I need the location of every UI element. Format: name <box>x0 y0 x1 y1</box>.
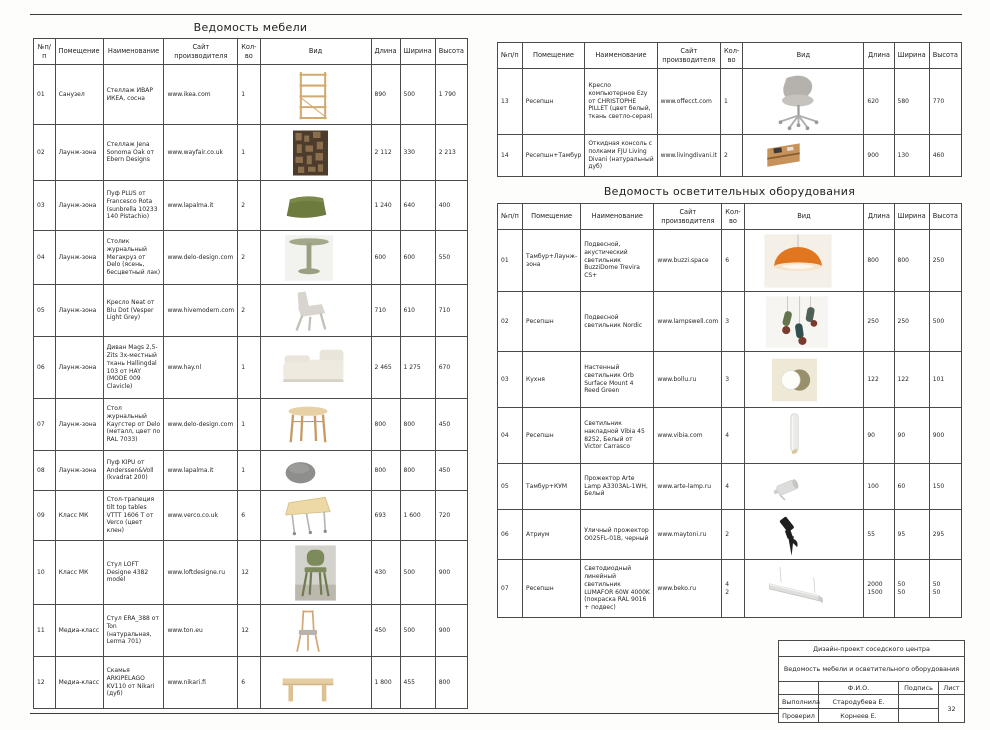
cell-name: Пуф KIPU от Anderssen&Voll (kvadrat 200) <box>103 451 164 491</box>
table-row: 07Лаунж-зонаСтол журнальный Каугстер от … <box>34 399 468 451</box>
cell-length: 2 465 <box>371 337 400 399</box>
cell-length: 2 112 <box>371 125 400 181</box>
view-cell <box>260 181 371 231</box>
col-header-no: №п/п <box>498 204 523 230</box>
cell-name: Настенный светильник Orb Surface Mount 4… <box>581 352 654 408</box>
cell-room: Ресепшн <box>522 69 585 135</box>
furniture-section: Ведомость мебели №п/пПомещениеНаименован… <box>33 20 468 709</box>
cell-width: 455 <box>400 657 435 709</box>
col-header-site: Сайт производителя <box>164 39 238 65</box>
cell-width: 330 <box>400 125 435 181</box>
chair-green-image <box>264 544 367 602</box>
cell-name: Кресло компьютерное Ezy от CHRISTOPHE PI… <box>585 69 657 135</box>
table-row: 05Тамбур+КУМПрожектор Arte Lamp A3303AL-… <box>498 464 962 510</box>
cell-qty: 6 <box>722 230 744 292</box>
cell-no: 03 <box>34 181 56 231</box>
checked-by-label: Проверил <box>779 709 819 723</box>
cell-qty: 4 2 <box>722 560 744 618</box>
table-row: 09Класс МКСтол-трапеция tilt top tables … <box>34 491 468 541</box>
col-header-name: Наименование <box>581 204 654 230</box>
wall-shelf-image <box>264 128 357 178</box>
cell-length: 122 <box>864 352 894 408</box>
office-chair-image <box>746 72 851 132</box>
view-cell <box>744 230 864 292</box>
cell-width: 50 50 <box>894 560 929 618</box>
cell-name: Прожектор Arte Lamp A3303AL-1WH, Белый <box>581 464 654 510</box>
cell-length: 55 <box>864 510 894 560</box>
cell-qty: 4 <box>722 464 744 510</box>
lighting-table: №п/пПомещениеНаименованиеСайт производит… <box>497 203 962 618</box>
view-cell <box>744 464 864 510</box>
cell-width: 640 <box>400 181 435 231</box>
col-header-width: Ширина <box>400 39 435 65</box>
col-header-room: Помещение <box>55 39 103 65</box>
dome-pendant-image <box>748 233 848 289</box>
col-header-height: Высота <box>929 204 961 230</box>
view-cell <box>260 451 371 491</box>
cell-length: 1 240 <box>371 181 400 231</box>
cell-qty: 12 <box>238 605 260 657</box>
cell-room: Класс МК <box>55 541 103 605</box>
col-header-length: Длина <box>371 39 400 65</box>
cell-width: 500 <box>400 65 435 125</box>
cell-width: 580 <box>894 69 929 135</box>
table-row: 10Класс МКСтул LOFT Designe 4382 modelww… <box>34 541 468 605</box>
view-cell <box>260 541 371 605</box>
table-row: 02Лаунж-зонаСтеллаж Jena Sonoma Oak от E… <box>34 125 468 181</box>
cell-site: www.hay.nl <box>164 337 238 399</box>
view-cell <box>744 352 864 408</box>
cell-length: 2000 1500 <box>864 560 894 618</box>
cell-name: Стул LOFT Designe 4382 model <box>103 541 164 605</box>
cell-length: 693 <box>371 491 400 541</box>
table-row: 13РесепшнКресло компьютерное Ezy от CHRI… <box>498 69 962 135</box>
col-header-room: Помещение <box>523 204 581 230</box>
cell-height: 460 <box>929 135 961 177</box>
cell-height: 1 790 <box>435 65 467 125</box>
empty-cell <box>779 682 819 695</box>
col-header-view: Вид <box>743 43 864 69</box>
cell-width: 122 <box>894 352 929 408</box>
cell-site: www.delo-design.com <box>164 231 238 285</box>
cell-no: 05 <box>34 285 56 337</box>
cell-no: 03 <box>498 352 523 408</box>
flip-table-image <box>264 494 349 538</box>
cell-height: 101 <box>929 352 961 408</box>
cell-name: Стол-трапеция tilt top tables VTTT 1606 … <box>103 491 164 541</box>
cell-height: 900 <box>929 408 961 464</box>
col-header-name: Наименование <box>585 43 657 69</box>
cell-height: 770 <box>929 69 961 135</box>
col-header-qty: Кол-во <box>722 204 744 230</box>
spike-light-image <box>748 513 833 557</box>
made-by-signature <box>899 695 939 709</box>
cell-room: Медиа-класс <box>55 657 103 709</box>
cell-qty: 1 <box>238 399 260 451</box>
cell-length: 430 <box>371 541 400 605</box>
view-cell <box>744 560 864 618</box>
cell-site: www.livingdivani.it <box>657 135 720 177</box>
cell-site: www.wayfair.co.uk <box>164 125 238 181</box>
cell-qty: 1 <box>238 125 260 181</box>
col-header-view: Вид <box>260 39 371 65</box>
cell-no: 04 <box>34 231 56 285</box>
col-header-qty: Кол-во <box>238 39 260 65</box>
cell-height: 500 <box>929 292 961 352</box>
cell-site: www.lapalma.it <box>164 451 238 491</box>
spot-white-image <box>748 467 828 507</box>
cell-room: Ресепшн <box>523 292 581 352</box>
cell-height: 900 <box>435 541 467 605</box>
cell-no: 06 <box>34 337 56 399</box>
view-cell <box>260 605 371 657</box>
cell-width: 1 600 <box>400 491 435 541</box>
cell-name: Откидная консоль с полками FJU Living Di… <box>585 135 657 177</box>
col-header-width: Ширина <box>894 43 929 69</box>
cell-no: 11 <box>34 605 56 657</box>
cell-name: Пуф PLUS от Francesco Rota (sunbrella 10… <box>103 181 164 231</box>
view-cell <box>743 69 864 135</box>
cell-no: 05 <box>498 464 523 510</box>
checked-by-name: Корнеев Е. <box>819 709 899 723</box>
document-title: Ведомость мебели и осветительного оборуд… <box>779 657 965 682</box>
cell-name: Светодиодный линейный светильник LUMAFOR… <box>581 560 654 618</box>
cell-site: www.lampswell.com <box>654 292 722 352</box>
view-cell <box>260 337 371 399</box>
cell-length: 800 <box>371 451 400 491</box>
table-row: 07РесепшнСветодиодный линейный светильни… <box>498 560 962 618</box>
cell-no: 02 <box>34 125 56 181</box>
made-by-name: Стародубева Е. <box>819 695 899 709</box>
cell-height: 550 <box>435 231 467 285</box>
sheet-frame-top <box>30 14 962 15</box>
cell-width: 500 <box>400 605 435 657</box>
cell-qty: 3 <box>722 352 744 408</box>
cell-width: 500 <box>400 541 435 605</box>
cell-site: www.arte-lamp.ru <box>654 464 722 510</box>
col-header-length: Длина <box>864 204 894 230</box>
cell-room: Ресепшн <box>523 408 581 464</box>
cell-height: 50 50 <box>929 560 961 618</box>
view-cell <box>744 292 864 352</box>
cell-name: Столик журнальный Мегакруз от Delo (ясен… <box>103 231 164 285</box>
table-row: 06АтриумУличный прожектор O025FL-01B, че… <box>498 510 962 560</box>
table-row: 14Ресепшн+ТамбурОткидная консоль с полка… <box>498 135 962 177</box>
col-header-qty: Кол-во <box>720 43 742 69</box>
table-row: 05Лаунж-зонаКресло Neat от Blu Dot (Vesp… <box>34 285 468 337</box>
cell-site: www.lapalma.it <box>164 181 238 231</box>
cell-height: 450 <box>435 399 467 451</box>
cell-no: 02 <box>498 292 523 352</box>
cell-height: 295 <box>929 510 961 560</box>
cell-height: 800 <box>435 657 467 709</box>
cell-height: 670 <box>435 337 467 399</box>
cell-length: 800 <box>864 230 894 292</box>
cell-qty: 2 <box>722 510 744 560</box>
cell-room: Лаунж-зона <box>55 125 103 181</box>
bench-image <box>264 660 352 706</box>
cell-site: www.hivemodern.com <box>164 285 238 337</box>
cell-name: Стол журнальный Каугстер от Delo (металл… <box>103 399 164 451</box>
pouf-green-image <box>264 184 349 228</box>
sheet-number: 32 <box>939 695 965 723</box>
header-row: №п/пПомещениеНаименованиеСайт производит… <box>498 204 962 230</box>
cell-length: 100 <box>864 464 894 510</box>
cell-qty: 1 <box>238 337 260 399</box>
cell-width: 130 <box>894 135 929 177</box>
cell-no: 07 <box>34 399 56 451</box>
title-block-table: Дизайн-проект соседского центра Ведомост… <box>778 640 965 723</box>
cell-height: 150 <box>929 464 961 510</box>
col-header-room: Помещение <box>522 43 585 69</box>
sofa-image <box>264 340 364 396</box>
col-header-no: №п/п <box>498 43 523 69</box>
cell-qty: 3 <box>722 292 744 352</box>
cell-room: Ресепшн+Тамбур <box>522 135 585 177</box>
cell-qty: 6 <box>238 491 260 541</box>
cell-qty: 4 <box>722 408 744 464</box>
col-header-height: Высота <box>435 39 467 65</box>
cell-room: Класс МК <box>55 491 103 541</box>
cell-height: 710 <box>435 285 467 337</box>
cell-room: Лаунж-зона <box>55 399 103 451</box>
cell-length: 600 <box>371 231 400 285</box>
cell-room: Тамбур+Лаунж-зона <box>523 230 581 292</box>
cell-room: Санузел <box>55 65 103 125</box>
linear-light-image <box>748 563 843 615</box>
table-row: 08Лаунж-зонаПуф KIPU от Anderssen&Voll (… <box>34 451 468 491</box>
col-header-site: Сайт производителя <box>657 43 720 69</box>
cell-length: 1 800 <box>371 657 400 709</box>
right-section: №п/пПомещениеНаименованиеСайт производит… <box>497 42 962 618</box>
cell-site: www.buzzi.space <box>654 230 722 292</box>
pouf-grey-image <box>264 454 337 488</box>
cell-no: 08 <box>34 451 56 491</box>
cell-width: 610 <box>400 285 435 337</box>
cell-length: 900 <box>864 135 894 177</box>
cell-length: 450 <box>371 605 400 657</box>
cell-no: 13 <box>498 69 523 135</box>
wall-console-image <box>746 138 821 174</box>
cell-length: 890 <box>371 65 400 125</box>
cell-qty: 6 <box>238 657 260 709</box>
view-cell <box>744 408 864 464</box>
cell-width: 800 <box>894 230 929 292</box>
cell-site: www.maytoni.ru <box>654 510 722 560</box>
view-cell <box>260 657 371 709</box>
lighting-table-title: Ведомость осветительных оборудования <box>497 184 962 202</box>
signature-header: Подпись <box>899 682 939 695</box>
cell-name: Светильник накладной Vibia 45 8252, Белы… <box>581 408 654 464</box>
cell-width: 95 <box>894 510 929 560</box>
view-cell <box>743 135 864 177</box>
cell-no: 09 <box>34 491 56 541</box>
cell-width: 800 <box>400 399 435 451</box>
cell-no: 07 <box>498 560 523 618</box>
cell-room: Лаунж-зона <box>55 181 103 231</box>
cell-name: Стеллаж ИВАР ИКЕА, сосна <box>103 65 164 125</box>
col-header-length: Длина <box>864 43 894 69</box>
cell-height: 720 <box>435 491 467 541</box>
view-cell <box>260 125 371 181</box>
cell-no: 12 <box>34 657 56 709</box>
sheet-header: Лист <box>939 682 965 695</box>
orb-sconce-image <box>748 355 841 405</box>
cell-name: Скамья ARKIPELAGO KV110 от Nikari (дуб) <box>103 657 164 709</box>
cell-room: Кухня <box>523 352 581 408</box>
cell-site: www.verco.co.uk <box>164 491 238 541</box>
cell-qty: 2 <box>238 181 260 231</box>
cell-height: 2 213 <box>435 125 467 181</box>
table-row: 03КухняНастенный светильник Orb Surface … <box>498 352 962 408</box>
cell-height: 450 <box>435 451 467 491</box>
pedestal-table-image <box>264 234 354 282</box>
cluster-pendant-image <box>748 295 846 349</box>
view-cell <box>260 65 371 125</box>
cell-no: 10 <box>34 541 56 605</box>
cell-name: Стеллаж Jena Sonoma Oak от Ebern Designs <box>103 125 164 181</box>
table-row: 01Тамбур+Лаунж-зонаПодвесной, акустическ… <box>498 230 962 292</box>
cell-no: 14 <box>498 135 523 177</box>
cell-site: www.loftdesigne.ru <box>164 541 238 605</box>
col-header-width: Ширина <box>894 204 929 230</box>
view-cell <box>260 285 371 337</box>
table-row: 03Лаунж-зонаПуф PLUS от Francesco Rota (… <box>34 181 468 231</box>
cell-site: www.beko.ru <box>654 560 722 618</box>
cell-site: www.offecct.com <box>657 69 720 135</box>
furniture-table-title: Ведомость мебели <box>33 20 468 38</box>
lounge-chair-image <box>264 288 352 334</box>
cell-width: 600 <box>400 231 435 285</box>
table-row: 04РесепшнСветильник накладной Vibia 45 8… <box>498 408 962 464</box>
cell-room: Лаунж-зона <box>55 451 103 491</box>
title-block: Дизайн-проект соседского центра Ведомост… <box>778 640 964 723</box>
cell-length: 800 <box>371 399 400 451</box>
cell-qty: 1 <box>238 65 260 125</box>
cell-width: 1 275 <box>400 337 435 399</box>
view-cell <box>260 231 371 285</box>
fio-header: Ф.И.О. <box>819 682 899 695</box>
cell-name: Подвесной, акустический светильник Buzzi… <box>581 230 654 292</box>
col-header-no: №п/п <box>34 39 56 65</box>
furniture-table-continued: №п/пПомещениеНаименованиеСайт производит… <box>497 42 962 177</box>
table-row: 11Медиа-классСтул ERA_388 от Ton (натура… <box>34 605 468 657</box>
cell-room: Лаунж-зона <box>55 231 103 285</box>
cell-site: www.bollu.ru <box>654 352 722 408</box>
cell-name: Стул ERA_388 от Ton (натуральная, Lerma … <box>103 605 164 657</box>
table-row: 01СанузелСтеллаж ИВАР ИКЕА, соснаwww.ike… <box>34 65 468 125</box>
cell-qty: 1 <box>720 69 742 135</box>
cell-no: 04 <box>498 408 523 464</box>
cell-site: www.vibia.com <box>654 408 722 464</box>
cell-room: Медиа-класс <box>55 605 103 657</box>
cell-width: 90 <box>894 408 929 464</box>
cell-height: 400 <box>435 181 467 231</box>
furniture-table: №п/пПомещениеНаименованиеСайт производит… <box>33 38 468 709</box>
col-header-view: Вид <box>744 204 864 230</box>
cell-site: www.nikari.fi <box>164 657 238 709</box>
col-header-site: Сайт производителя <box>654 204 722 230</box>
wood-table-image <box>264 402 352 448</box>
cell-length: 90 <box>864 408 894 464</box>
cell-no: 01 <box>498 230 523 292</box>
cell-qty: 2 <box>238 285 260 337</box>
cell-site: www.ikea.com <box>164 65 238 125</box>
cell-qty: 2 <box>720 135 742 177</box>
cell-length: 250 <box>864 292 894 352</box>
cell-qty: 12 <box>238 541 260 605</box>
table-row: 12Медиа-классСкамья ARKIPELAGO KV110 от … <box>34 657 468 709</box>
drawing-sheet: Ведомость мебели №п/пПомещениеНаименован… <box>0 0 990 730</box>
cell-height: 250 <box>929 230 961 292</box>
cell-site: www.ton.eu <box>164 605 238 657</box>
cell-width: 250 <box>894 292 929 352</box>
cell-room: Ресепшн <box>523 560 581 618</box>
cell-no: 01 <box>34 65 56 125</box>
table-row: 06Лаунж-зонаДиван Mags 2,5-Zits 3х-местн… <box>34 337 468 399</box>
shelf-ivar-image <box>264 68 362 122</box>
cell-site: www.delo-design.com <box>164 399 238 451</box>
cell-name: Подвесной светильник Nordic <box>581 292 654 352</box>
cell-qty: 2 <box>238 231 260 285</box>
cell-width: 800 <box>400 451 435 491</box>
project-title: Дизайн-проект соседского центра <box>779 641 965 657</box>
cell-height: 900 <box>435 605 467 657</box>
cell-name: Диван Mags 2,5-Zits 3х-местный ткань Hal… <box>103 337 164 399</box>
cell-length: 710 <box>371 285 400 337</box>
header-row: №п/пПомещениеНаименованиеСайт производит… <box>498 43 962 69</box>
cell-room: Атриум <box>523 510 581 560</box>
cell-room: Тамбур+КУМ <box>523 464 581 510</box>
chair-wood-image <box>264 608 352 654</box>
header-row: №п/пПомещениеНаименованиеСайт производит… <box>34 39 468 65</box>
view-cell <box>260 491 371 541</box>
view-cell <box>260 399 371 451</box>
made-by-label: Выполнила <box>779 695 819 709</box>
table-row: 02РесепшнПодвесной светильник Nordicwww.… <box>498 292 962 352</box>
cell-no: 06 <box>498 510 523 560</box>
cell-width: 60 <box>894 464 929 510</box>
checked-by-signature <box>899 709 939 723</box>
cell-name: Уличный прожектор O025FL-01B, черный <box>581 510 654 560</box>
col-header-height: Высота <box>929 43 961 69</box>
cell-room: Лаунж-зона <box>55 285 103 337</box>
cell-room: Лаунж-зона <box>55 337 103 399</box>
view-cell <box>744 510 864 560</box>
cell-length: 620 <box>864 69 894 135</box>
cell-qty: 1 <box>238 451 260 491</box>
table-row: 04Лаунж-зонаСтолик журнальный Мегакруз о… <box>34 231 468 285</box>
cell-name: Кресло Neat от Blu Dot (Vesper Light Gre… <box>103 285 164 337</box>
tube-light-image <box>748 411 841 461</box>
col-header-name: Наименование <box>103 39 164 65</box>
